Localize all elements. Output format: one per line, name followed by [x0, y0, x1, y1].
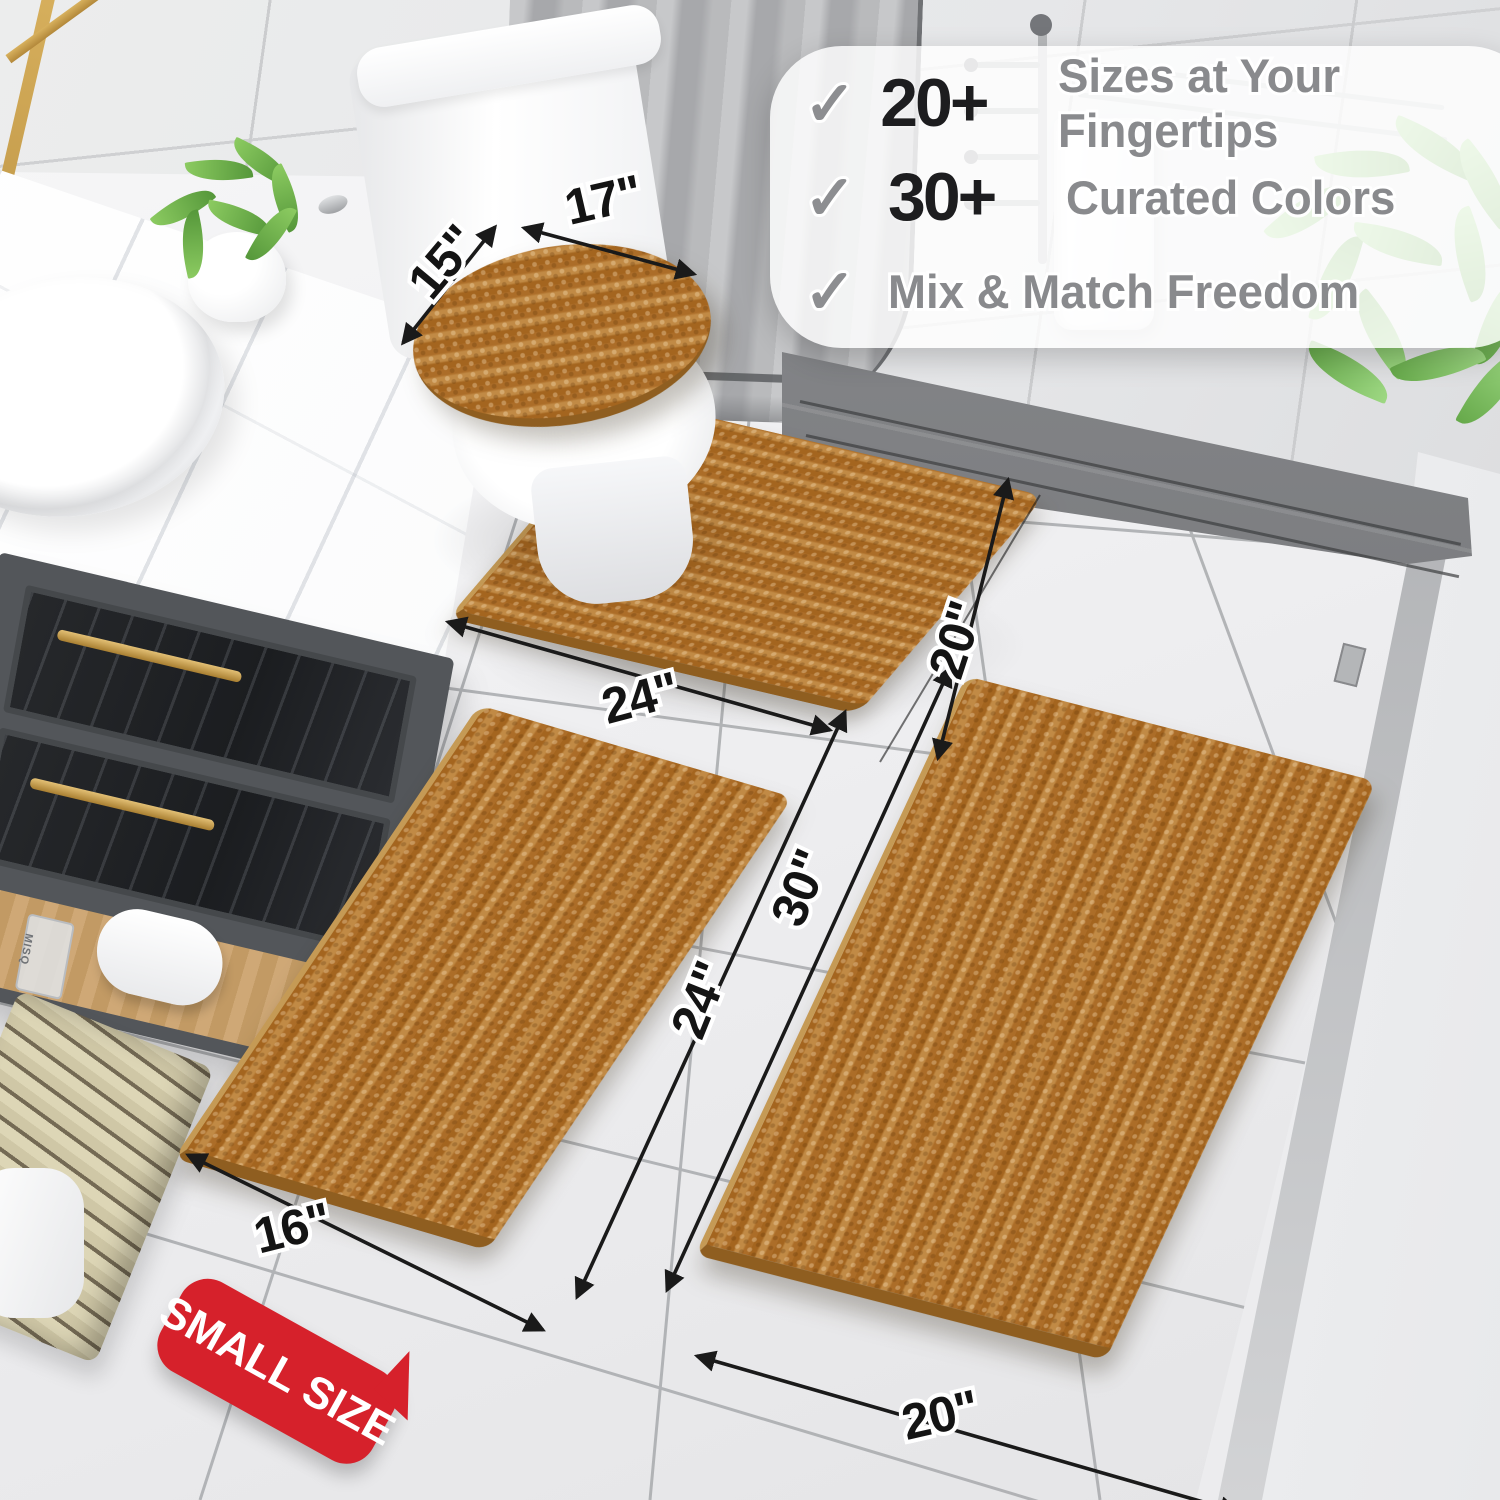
feature-label: Curated Colors: [1066, 170, 1395, 225]
bottle-label: MISQ: [17, 932, 34, 966]
product-image: MISQ 15" 17": [0, 0, 1500, 1500]
features-panel: ✓ 20+ Sizes at Your Fingertips ✓ 30+ Cur…: [770, 46, 1500, 348]
feature-label: Sizes at Your Fingertips: [1058, 48, 1500, 158]
rolled-towel: [90, 901, 229, 1014]
folded-towel: [0, 1168, 84, 1318]
check-icon: ✓: [804, 161, 888, 234]
towel-rack-knob: [1030, 14, 1052, 36]
feature-row: ✓ Mix & Match Freedom: [804, 250, 1500, 332]
perfume-bottle: MISQ: [15, 913, 75, 1000]
feature-label: Mix & Match Freedom: [888, 264, 1359, 319]
feature-row: ✓ 20+ Sizes at Your Fingertips: [804, 62, 1500, 144]
check-icon: ✓: [804, 67, 880, 140]
feature-row: ✓ 30+ Curated Colors: [804, 156, 1500, 238]
feature-count: 20+: [880, 64, 1058, 142]
check-icon: ✓: [804, 255, 888, 328]
feature-count: 30+: [888, 158, 1066, 236]
